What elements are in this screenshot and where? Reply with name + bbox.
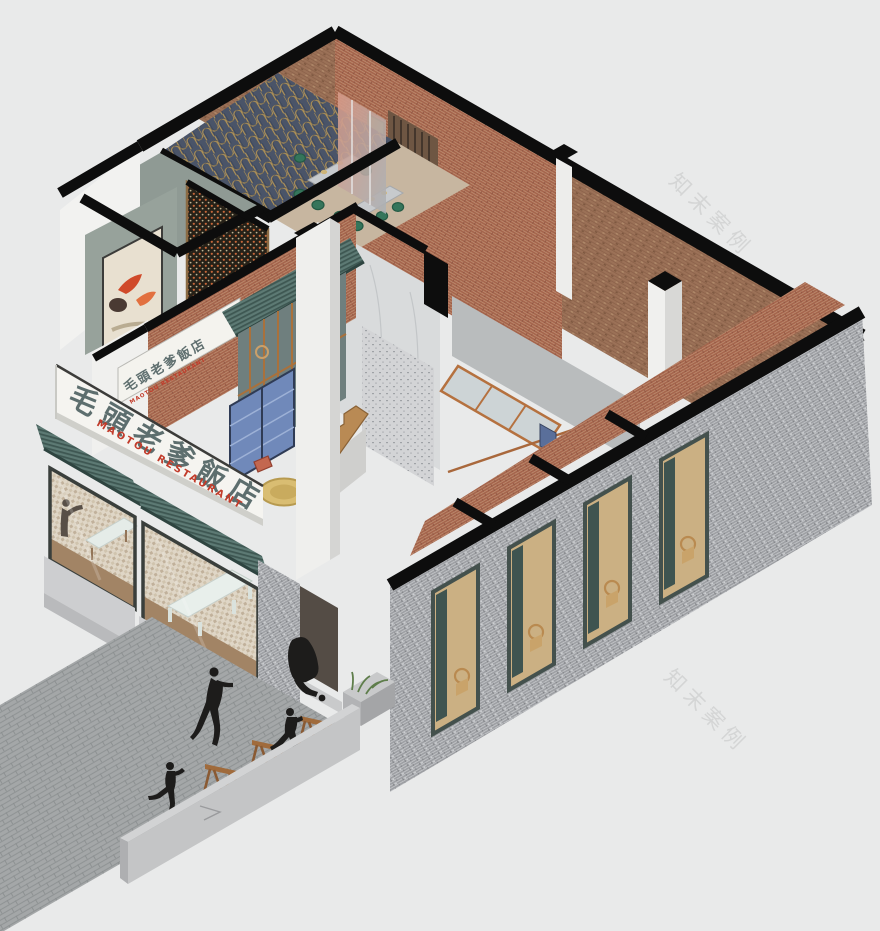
white-pier-side [330, 218, 340, 560]
facade-window-1 [433, 566, 478, 734]
white-pier [296, 218, 330, 580]
white-column [556, 158, 572, 300]
facade-window-2 [509, 522, 554, 690]
axonometric-restaurant-illustration: 知末案例 知末案例 知末案例 [0, 0, 880, 931]
facade-window-3 [585, 478, 630, 646]
facade-window-4 [661, 434, 707, 602]
lazy-susan [270, 485, 298, 500]
axonometric-restaurant-scene: 知末案例 知末案例 知末案例 [0, 0, 880, 931]
